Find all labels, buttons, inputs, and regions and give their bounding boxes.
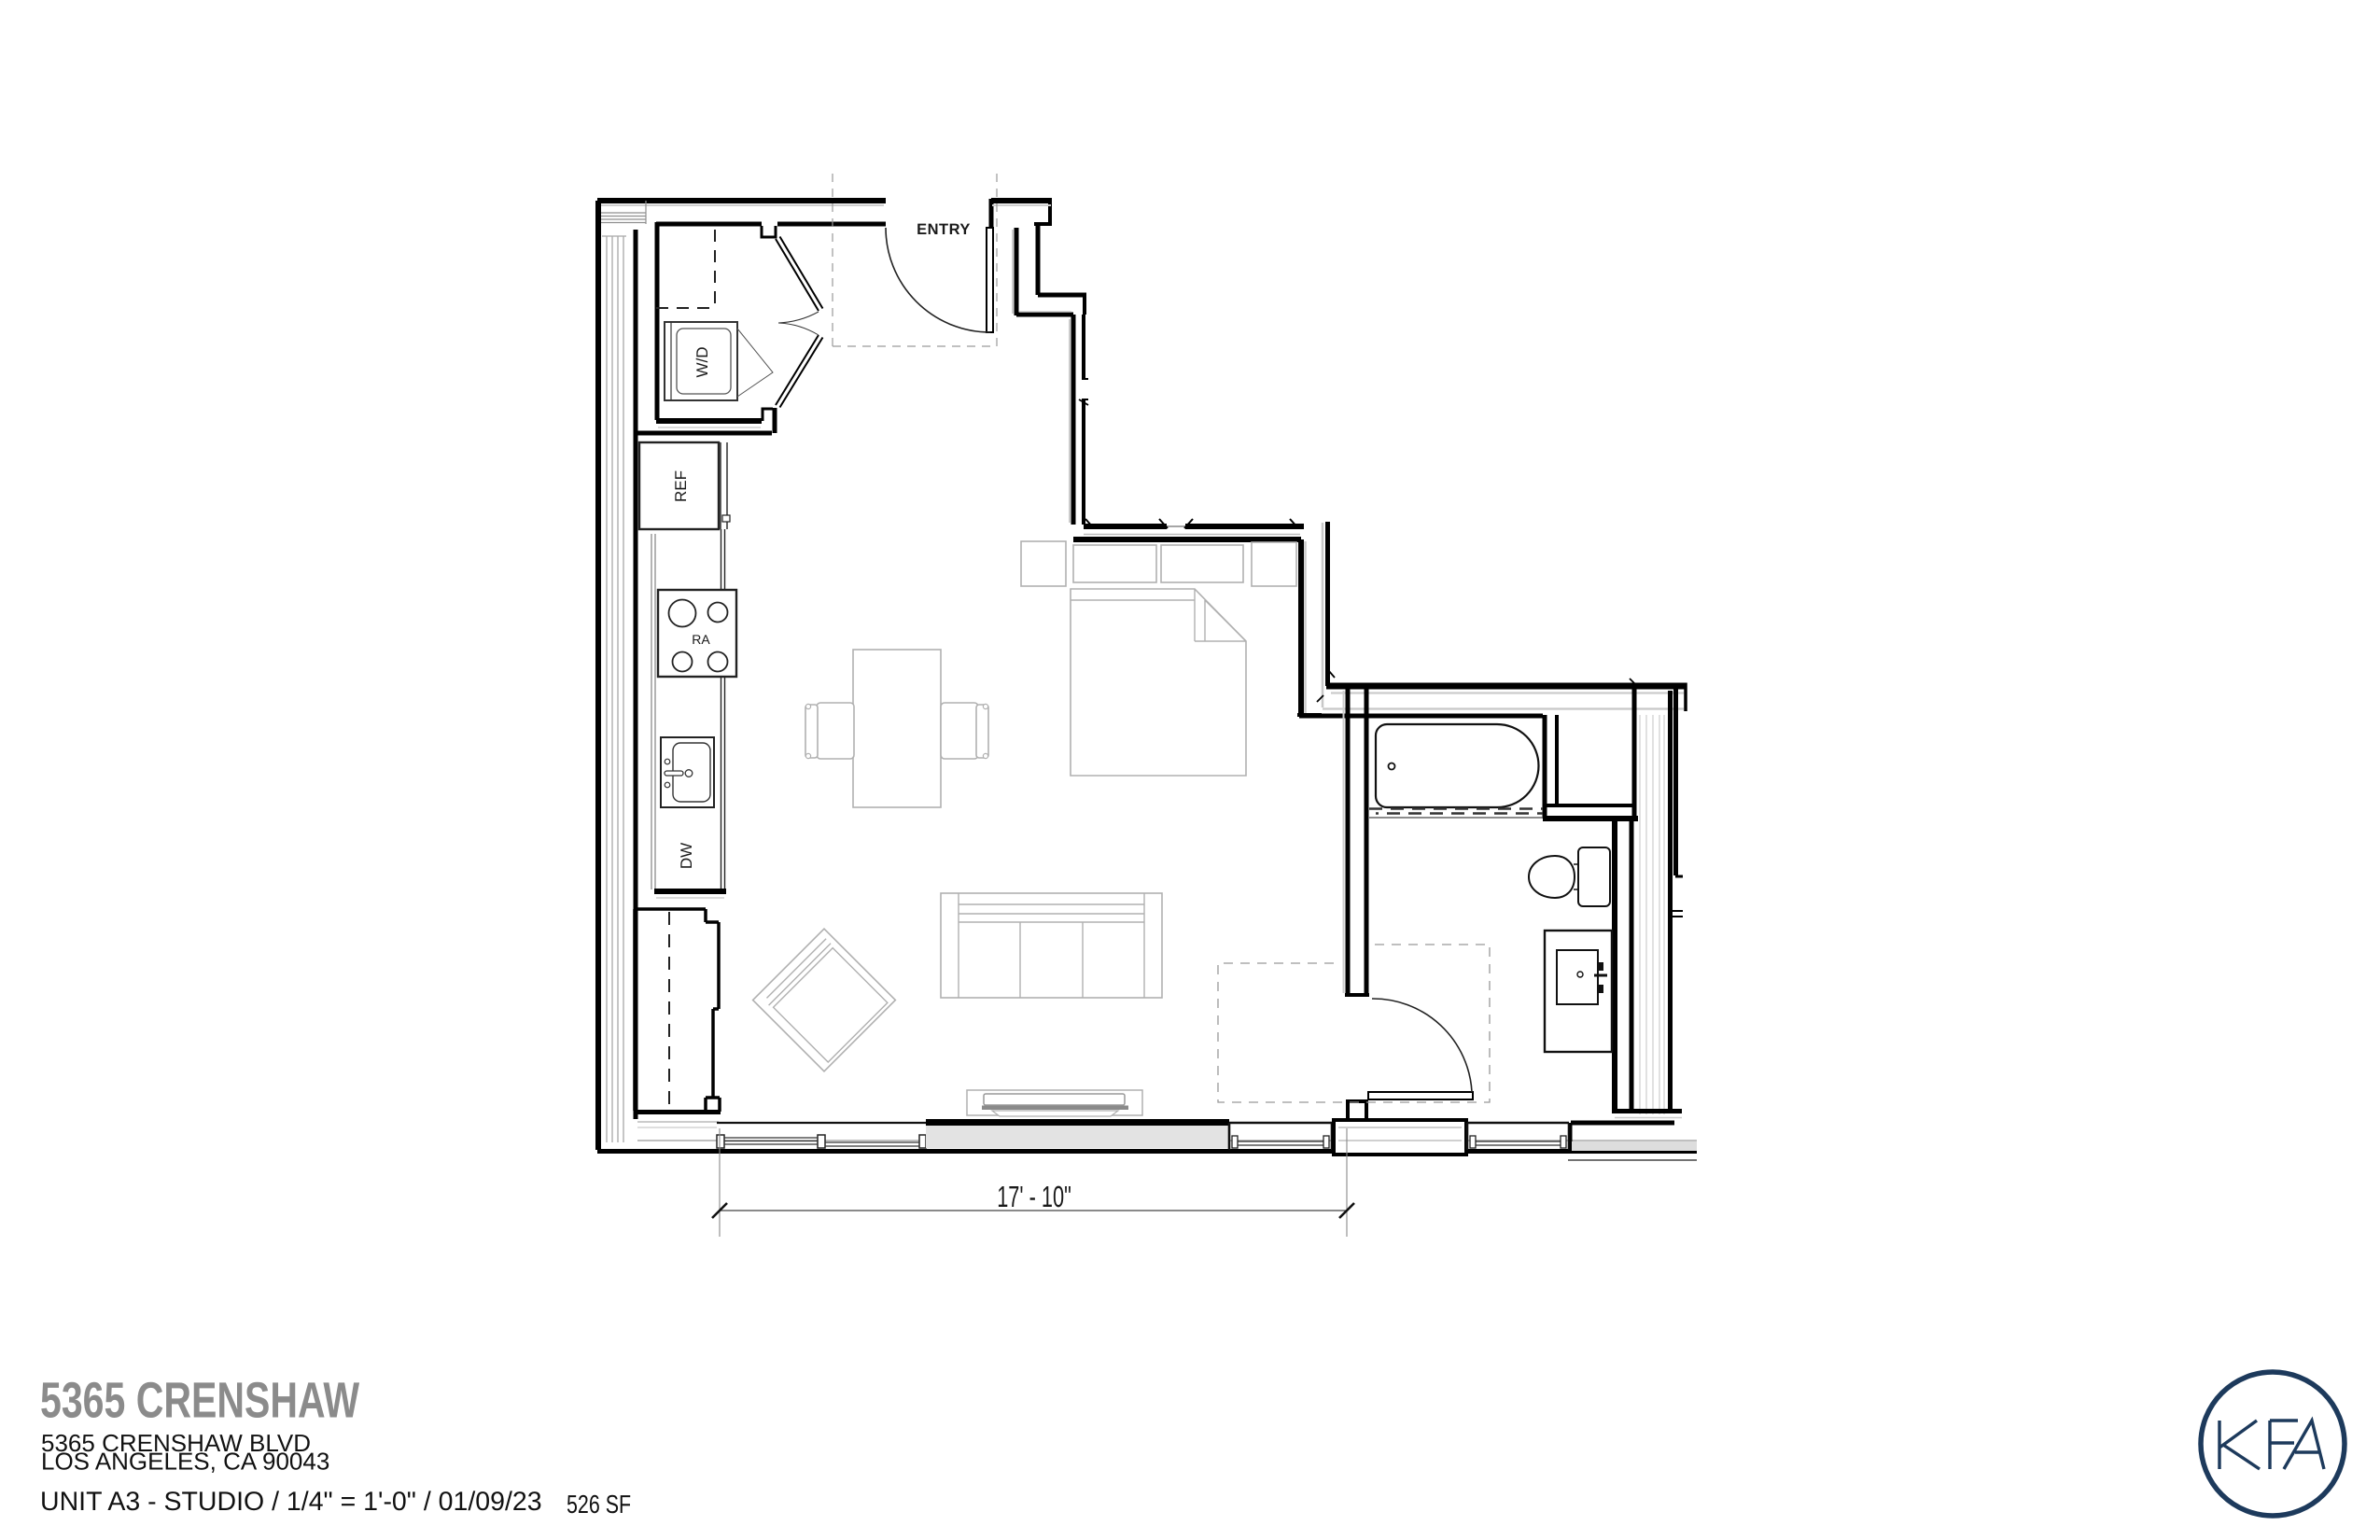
svg-text:W/D: W/D xyxy=(693,346,711,377)
svg-text:17' - 10": 17' - 10" xyxy=(997,1180,1071,1213)
svg-text:UNIT A3 - STUDIO / 1/4" = 1'-: UNIT A3 - STUDIO / 1/4" = 1'-0" / 01/09/… xyxy=(40,1487,542,1517)
svg-text:RA: RA xyxy=(692,632,710,647)
svg-text:ENTRY: ENTRY xyxy=(917,221,971,238)
svg-text:LOS ANGELES, CA 90043: LOS ANGELES, CA 90043 xyxy=(41,1448,329,1476)
svg-text:REF: REF xyxy=(672,470,690,502)
svg-text:5365 CRENSHAW: 5365 CRENSHAW xyxy=(40,1373,359,1429)
svg-text:DW: DW xyxy=(678,843,695,869)
svg-text:526 SF: 526 SF xyxy=(567,1490,631,1519)
